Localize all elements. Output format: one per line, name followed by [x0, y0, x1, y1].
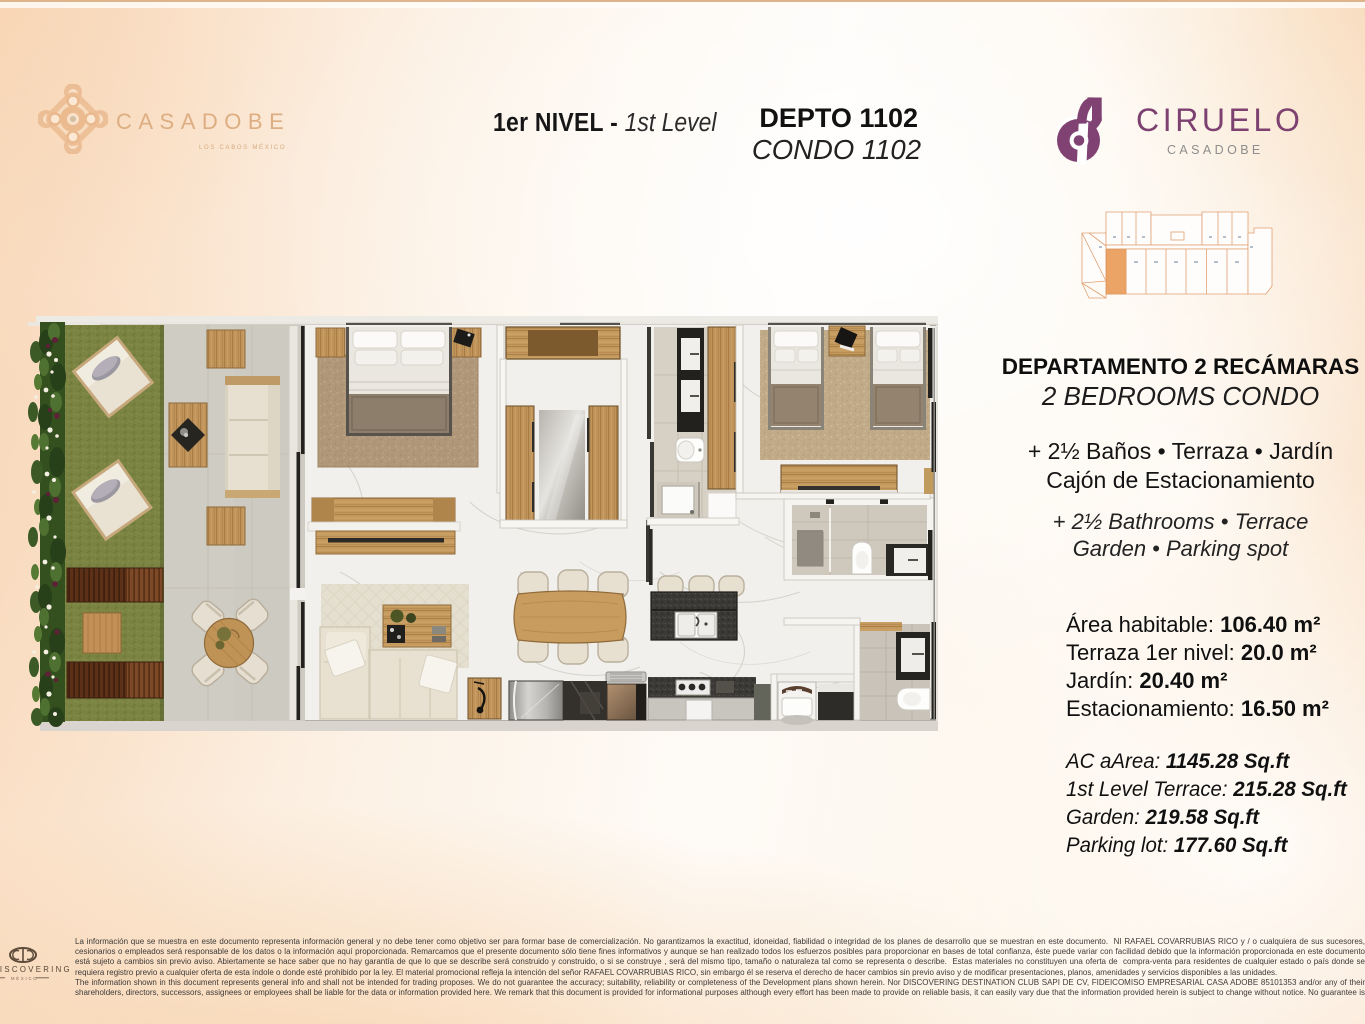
- svg-text:DISCOVERING: DISCOVERING: [0, 965, 72, 974]
- svg-text:MÉXICO: MÉXICO: [11, 976, 38, 981]
